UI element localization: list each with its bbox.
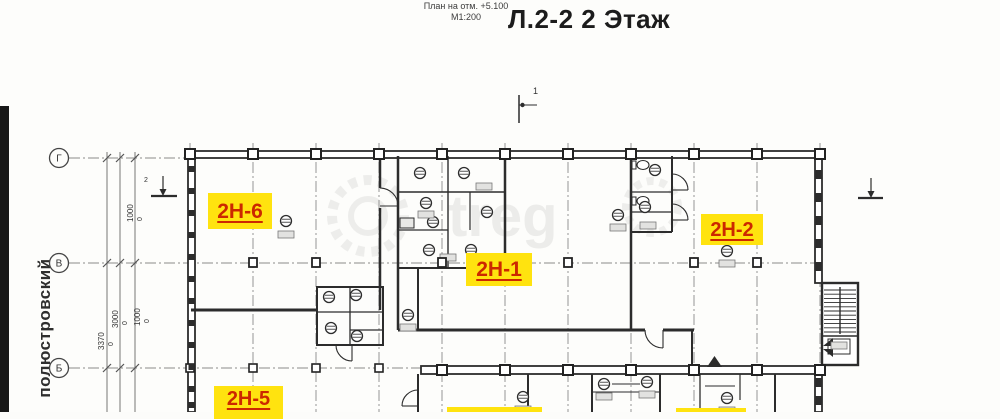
drain-circle-icon: [281, 216, 292, 227]
drain-circle-icon: [403, 310, 414, 321]
column-square: [374, 149, 384, 159]
column-square: [626, 365, 636, 375]
unit-label-2n-6: 2Н-6: [208, 193, 272, 229]
dim-lower-3370-zero: 0: [108, 342, 115, 346]
equipment-tag: [719, 260, 735, 267]
window-pier: [815, 378, 822, 387]
dim-upper-zero: 0: [137, 217, 144, 221]
toilet-icon: [632, 197, 636, 205]
drain-circle-icon: [650, 165, 661, 176]
axis-label-g: Г: [56, 154, 62, 165]
column-square: [815, 365, 825, 375]
equipment-tag: [418, 211, 434, 218]
equipment-tag: [610, 224, 626, 231]
drain-circle-icon: [324, 292, 335, 303]
equipment-tag: [476, 183, 492, 190]
drain-circle-icon: [351, 290, 362, 301]
benchmark-number: 2: [144, 177, 148, 184]
wall-hatch-tick: [189, 188, 195, 194]
column-square: [249, 258, 257, 267]
wall-hatch-tick: [189, 276, 195, 282]
equipment-tag: [400, 324, 416, 331]
wall-hatch-tick: [189, 320, 195, 326]
window-pier: [815, 239, 822, 248]
window-pier: [815, 262, 822, 271]
column-square: [248, 149, 258, 159]
unit-label-cut: [676, 408, 746, 412]
dim-lower-1000-zero: 0: [144, 319, 151, 323]
wall-hatch-tick: [189, 166, 195, 172]
axis-label-v: В: [56, 259, 63, 270]
column-square: [249, 364, 257, 372]
unit-label-2n-2: 2Н-2: [701, 214, 763, 245]
watermark-gear-icon: [332, 180, 404, 252]
wall-hatch-tick: [189, 210, 195, 216]
column-square: [563, 365, 573, 375]
unit-label-2n-1: 2Н-1: [466, 253, 532, 286]
drain-circle-icon: [326, 323, 337, 334]
column-square: [437, 365, 447, 375]
equipment-tag: [639, 391, 655, 398]
plan-drawing: treg 1000 0 3370 0 3000 0: [0, 0, 1000, 412]
column-square: [563, 149, 573, 159]
equipment-tag: [640, 222, 656, 229]
wall-hatch-tick: [189, 254, 195, 260]
column-square: [437, 149, 447, 159]
wall-hatch-tick: [189, 232, 195, 238]
drain-circle-icon: [722, 246, 733, 257]
equipment-tag: [831, 342, 847, 349]
window-pier: [815, 216, 822, 225]
column-square: [312, 258, 320, 267]
drain-circle-icon: [722, 393, 733, 404]
wall-hatch-tick: [189, 386, 195, 392]
column-square: [375, 364, 383, 372]
equipment-tag: [278, 231, 294, 238]
wall-hatch-tick: [189, 402, 195, 408]
equipment-tag: [596, 393, 612, 400]
floorplan-photo: План на отм. +5.100 М1:200 Л.2-2 2 Этаж …: [0, 0, 1000, 412]
axis-bubble-labels: Г В Б: [56, 154, 63, 375]
drain-circle-icon: [482, 207, 493, 218]
drain-circle-icon: [415, 168, 426, 179]
drain-circle-icon: [613, 210, 624, 221]
unit-label-2n-5: 2Н-5: [214, 386, 283, 419]
wall-hatch-tick: [189, 364, 195, 370]
window-pier: [815, 396, 822, 405]
toilet-icon: [632, 161, 636, 169]
drain-circle-icon: [640, 202, 651, 213]
drain-circle-icon: [421, 198, 432, 209]
dim-lower-3000-zero: 0: [122, 321, 129, 325]
drain-circle-icon: [459, 168, 470, 179]
unit-label-cut: [447, 407, 542, 412]
drain-circle-icon: [424, 245, 435, 256]
dim-upper-1000: 1000: [126, 204, 135, 222]
staircase: [822, 283, 858, 365]
column-square: [690, 258, 698, 267]
column-square: [689, 149, 699, 159]
wall-hatch-tick: [189, 342, 195, 348]
column-square: [752, 149, 762, 159]
column-square: [500, 149, 510, 159]
dim-lower-1000: 1000: [133, 308, 142, 326]
section-number: 1: [533, 86, 538, 96]
column-square: [689, 365, 699, 375]
column-square: [185, 149, 195, 159]
drain-circle-icon: [352, 331, 363, 342]
column-square: [311, 149, 321, 159]
dim-lower-3000: 3000: [111, 310, 120, 328]
column-square: [752, 365, 762, 375]
wall-hatch-tick: [189, 298, 195, 304]
dim-lower-3370: 3370: [97, 332, 106, 350]
window-pier: [815, 170, 822, 179]
column-square: [815, 149, 825, 159]
column-square: [626, 149, 636, 159]
window-pier: [815, 193, 822, 202]
column-square: [564, 258, 572, 267]
drain-circle-icon: [599, 379, 610, 390]
column-square: [753, 258, 761, 267]
watermark-text: treg: [448, 184, 558, 249]
axis-label-b: Б: [56, 364, 63, 375]
door-swing-mark: [707, 356, 722, 367]
column-square: [438, 258, 446, 267]
drain-circle-icon: [518, 392, 529, 403]
column-square: [312, 364, 320, 372]
drain-circle-icon: [642, 377, 653, 388]
column-square: [500, 365, 510, 375]
annotation-texts: 1 2: [144, 86, 538, 184]
dimension-chain: [103, 152, 139, 412]
annotation-marks: [151, 95, 883, 198]
dimension-labels: 1000 0 3370 0 3000 0 1000 0: [97, 204, 151, 350]
